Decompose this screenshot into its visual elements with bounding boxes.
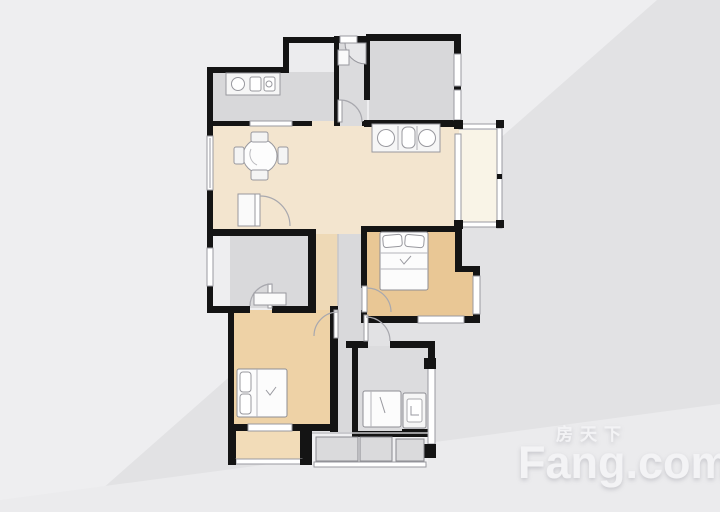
dining-table [243, 139, 277, 173]
wall-bedroom-left-left [228, 306, 234, 431]
dining-chair [251, 170, 268, 180]
door-gap-bath-top [340, 121, 362, 126]
door-leaf-bedroom-left [334, 310, 338, 338]
window-bath-mid-left [207, 248, 213, 286]
wall-room-tr-top [366, 34, 461, 41]
opening-kitchen-entry [312, 121, 334, 126]
wall-room-lr-left [352, 341, 358, 438]
door-leaf-bath-top [338, 100, 342, 122]
bath-top-fixture [338, 50, 349, 65]
door-leaf-bedroom-mid [362, 286, 367, 312]
window-balcony-left-bottom [236, 459, 302, 464]
window-balcony-divider [455, 134, 461, 222]
dining-chair [251, 132, 268, 142]
mullion-tick [497, 174, 502, 179]
wall-bedroom-mid-right [455, 226, 462, 272]
corner-block [228, 459, 236, 465]
window-bay-right [473, 276, 480, 314]
corner-block [454, 120, 463, 129]
corner-block [496, 220, 504, 228]
floor-bedroom-mid-bay [458, 270, 475, 318]
kitchen-burner [250, 77, 261, 91]
floor-hall-lower [338, 346, 352, 436]
floor-hall [338, 234, 363, 346]
vanity-fixture [402, 127, 415, 148]
corner-block [496, 120, 504, 128]
storage-cabinet [316, 437, 358, 461]
window-room-tr-2 [454, 90, 461, 120]
wall-bath-mid-right [308, 229, 316, 313]
storage-cabinet [360, 437, 392, 461]
dining-chair [278, 147, 288, 164]
wall-bedroom-mid-top [361, 226, 461, 232]
wall-room-lr-top-r [390, 341, 434, 348]
bed-pillow [405, 234, 425, 248]
window-kitchen-pass [250, 121, 292, 126]
corner-block [454, 220, 463, 229]
vanity-basin [419, 130, 436, 147]
floor-balcony-left [236, 428, 304, 461]
floor-shaft [286, 42, 334, 74]
window-balcony-bottom [459, 222, 499, 227]
entry-cabinet [238, 194, 255, 226]
bed-single-lr [363, 391, 401, 427]
vanity-basin [378, 130, 395, 147]
floor-balcony-right [459, 130, 502, 226]
wall-shaft-top [283, 37, 338, 43]
window-bath-top [340, 36, 357, 43]
door-leaf-room-lr [364, 315, 368, 341]
window-room-tr-1 [454, 54, 461, 86]
bed-pillow [383, 234, 403, 248]
bath-mid-sink [254, 293, 286, 305]
window-bedroom-mid-bottom [418, 316, 464, 323]
dining-chair [234, 147, 244, 164]
window-room-lr-right [428, 368, 435, 444]
fang-watermark: 房天下 Fang.com [518, 426, 720, 485]
window-bedroom-left-bottom [248, 424, 292, 431]
fang-watermark-logo: Fang.com [518, 440, 720, 485]
storage-cabinet [396, 439, 424, 461]
window-storage-bottom [314, 462, 426, 467]
bed-pillow [240, 372, 251, 392]
corner-block [424, 358, 436, 369]
wall-living-bottom [207, 229, 316, 236]
wall-bedroom-mid-left-up [361, 226, 367, 288]
window-balcony-top [459, 124, 499, 129]
corner-block [300, 459, 312, 465]
wall-step [283, 40, 289, 73]
nightstand-inner [407, 399, 422, 422]
wall-balcony-left-side [228, 429, 236, 464]
floor-room-top-right [369, 40, 457, 124]
floor-corridor [316, 234, 338, 310]
door-leaf-entry [255, 194, 260, 226]
wall-kitchen-left [207, 67, 213, 128]
bed-pillow [240, 394, 251, 414]
screenshot-root: 房天下 Fang.com [0, 0, 720, 512]
kitchen-sink [232, 78, 245, 91]
wall-kitchen-top [208, 67, 288, 73]
